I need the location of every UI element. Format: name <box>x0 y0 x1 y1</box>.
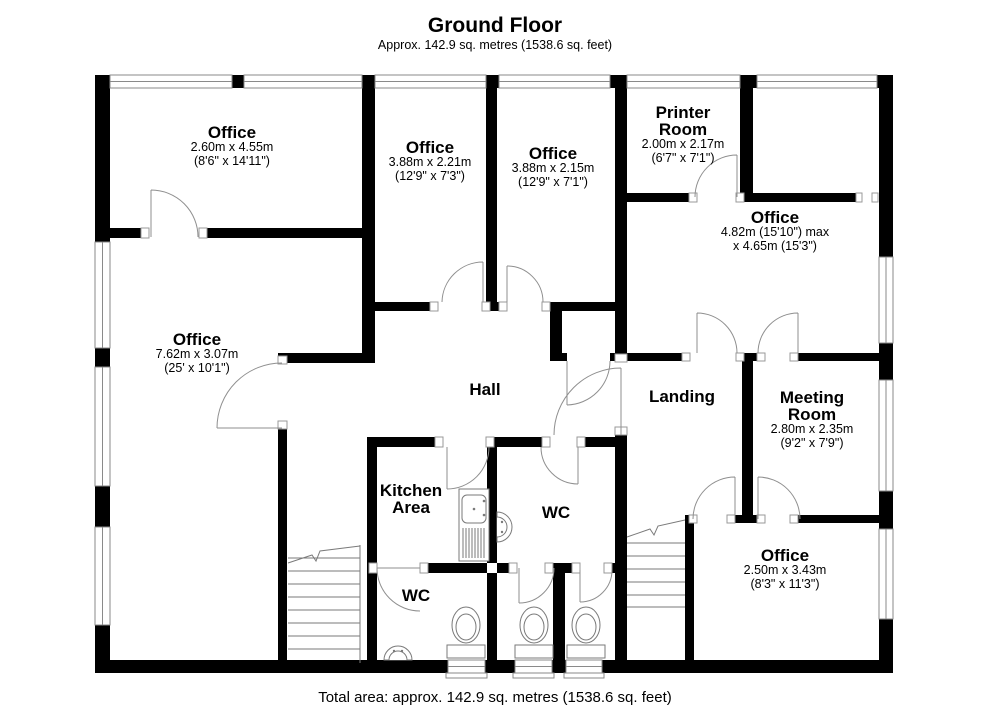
total-area-text: Total area: approx. 142.9 sq. metres (15… <box>0 689 990 706</box>
room-label-meeting-room: Meeting Room 2.80m x 2.35m (9'2" x 7'9") <box>766 389 858 450</box>
window-icon <box>879 380 893 491</box>
door-arc <box>554 368 621 435</box>
door-arc <box>697 313 737 353</box>
window-icon <box>95 527 110 625</box>
hand-basin-fixture <box>384 646 412 660</box>
window-icon <box>515 660 552 673</box>
window-icon <box>627 75 740 88</box>
window-icon <box>757 75 877 88</box>
room-label-office-bottom-right: Office 2.50m x 3.43m (8'3" x 11'3") <box>744 547 827 591</box>
room-label-office-left: Office 7.62m x 3.07m (25' x 10'1") <box>156 331 239 375</box>
door-arc <box>442 262 483 302</box>
window-icon <box>448 660 485 673</box>
floorplan-page: Ground Floor Approx. 142.9 sq. metres (1… <box>0 0 990 720</box>
door-arc <box>758 477 800 519</box>
door-arc <box>693 477 735 519</box>
window-icon <box>95 367 110 486</box>
room-label-printer-room: Printer Room 2.00m x 2.17m (6'7" x 7'1") <box>637 104 729 165</box>
staircase-right <box>627 520 685 607</box>
room-label-hall: Hall <box>469 381 500 398</box>
room-label-wc-upper: WC <box>542 504 570 521</box>
kitchen-sink-fixture <box>459 489 489 561</box>
door-arc <box>151 190 198 237</box>
room-label-office-top-mid-right: Office 3.88m x 2.15m (12'9" x 7'1") <box>512 145 595 189</box>
door-arc <box>758 313 798 353</box>
window-icon <box>110 75 232 88</box>
staircase-left <box>288 545 360 663</box>
room-label-office-right: Office 4.82m (15'10") max x 4.65m (15'3"… <box>721 209 829 253</box>
window-icon <box>879 529 893 619</box>
room-label-landing: Landing <box>649 388 715 405</box>
door-arc <box>580 570 612 602</box>
floorplan-drawing <box>0 0 990 720</box>
room-label-kitchen-area: Kitchen Area <box>365 482 457 516</box>
room-label-wc-lower: WC <box>402 587 430 604</box>
toilet-fixture <box>567 607 605 658</box>
room-label-office-top-mid-left: Office 3.88m x 2.21m (12'9" x 7'3") <box>389 139 472 183</box>
wc-basin-fixture <box>497 512 512 542</box>
window-icon <box>499 75 610 88</box>
room-label-office-top-left: Office 2.60m x 4.55m (8'6" x 14'11") <box>191 124 274 168</box>
window-icon <box>566 660 602 673</box>
toilet-fixture <box>447 607 485 658</box>
door-arc <box>541 447 578 484</box>
window-icon <box>375 75 486 88</box>
door-arc <box>567 361 610 405</box>
window-icon <box>244 75 362 88</box>
toilet-fixture <box>515 607 553 658</box>
door-arc <box>507 266 543 302</box>
window-icon <box>95 242 110 348</box>
window-icon <box>879 257 893 343</box>
